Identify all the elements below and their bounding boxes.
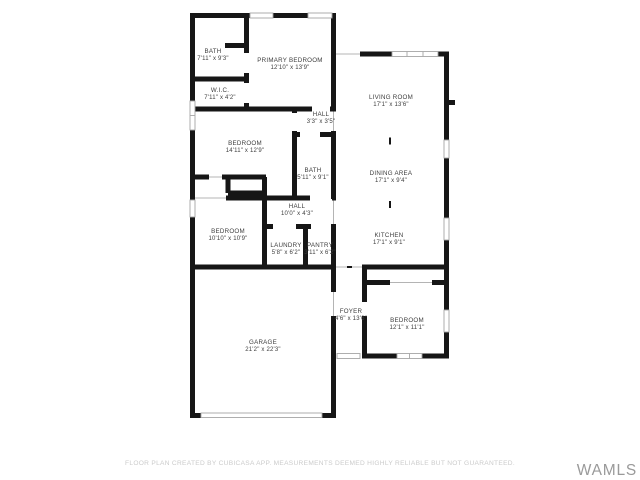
canvas-background [0, 0, 640, 480]
room-dims-wic: 7'11" x 4'2" [204, 95, 236, 101]
window [444, 218, 449, 240]
window [392, 52, 438, 57]
room-label-primary-bedroom: PRIMARY BEDROOM [257, 57, 322, 64]
room-dims-foyer: 4'6" x 13'6" [335, 316, 367, 322]
room-label-hall-long: HALL [289, 203, 306, 210]
room-dims-pantry: 3'11" x 6'2" [304, 250, 336, 256]
room-dims-bedroom-rear: 12'1" x 11'1" [389, 325, 424, 331]
room-label-dining-area: DINING AREA [370, 170, 413, 177]
room-dims-bedroom-lower: 10'10" x 10'9" [208, 236, 247, 242]
room-label-wic: W.I.C. [211, 87, 229, 94]
room-label-living-room: LIVING ROOM [369, 94, 413, 101]
room-label-bedroom-lower: BEDROOM [211, 228, 245, 235]
window [444, 140, 449, 158]
room-dims-living-room: 17'1" x 13'6" [373, 102, 409, 108]
front-door [337, 354, 360, 359]
room-label-bath-hall: BATH [304, 167, 321, 174]
room-label-kitchen: KITCHEN [375, 232, 404, 239]
room-dims-bedroom-middle: 14'11" x 12'9" [226, 148, 265, 154]
floor-plan: BATH7'11" x 9'3"PRIMARY BEDROOM12'10" x … [0, 0, 640, 480]
room-dims-hall-long: 10'0" x 4'3" [281, 211, 313, 217]
room-label-garage: GARAGE [249, 339, 277, 346]
window [250, 13, 273, 18]
room-dims-garage: 21'2" x 22'3" [245, 347, 281, 353]
room-dims-dining-area: 17'1" x 9'4" [375, 178, 407, 184]
window [308, 13, 332, 18]
disclaimer-text: FLOOR PLAN CREATED BY CUBICASA APP. MEAS… [125, 460, 515, 467]
room-label-bedroom-rear: BEDROOM [390, 317, 424, 324]
garage-door [201, 413, 322, 418]
room-label-hall-small: HALL [313, 111, 330, 118]
window [190, 200, 195, 217]
room-label-bedroom-middle: BEDROOM [228, 140, 262, 147]
room-dims-kitchen: 17'1" x 9'1" [373, 240, 405, 246]
room-dims-bath-hall: 5'11" x 9'1" [297, 175, 329, 181]
room-label-pantry: PANTRY [307, 242, 333, 249]
room-dims-bath-primary: 7'11" x 9'3" [197, 56, 229, 62]
room-dims-hall-small: 3'3" x 3'5" [307, 119, 335, 125]
room-label-laundry: LAUNDRY [270, 242, 301, 249]
room-dims-primary-bedroom: 12'10" x 13'9" [270, 65, 309, 71]
floor-plan-page: BATH7'11" x 9'3"PRIMARY BEDROOM12'10" x … [0, 0, 640, 480]
room-dims-laundry: 5'8" x 6'2" [272, 250, 300, 256]
room-label-foyer: FOYER [340, 308, 363, 315]
watermark-text: WAMLS [577, 462, 637, 479]
window [444, 310, 449, 332]
room-label-bath-primary: BATH [204, 48, 221, 55]
